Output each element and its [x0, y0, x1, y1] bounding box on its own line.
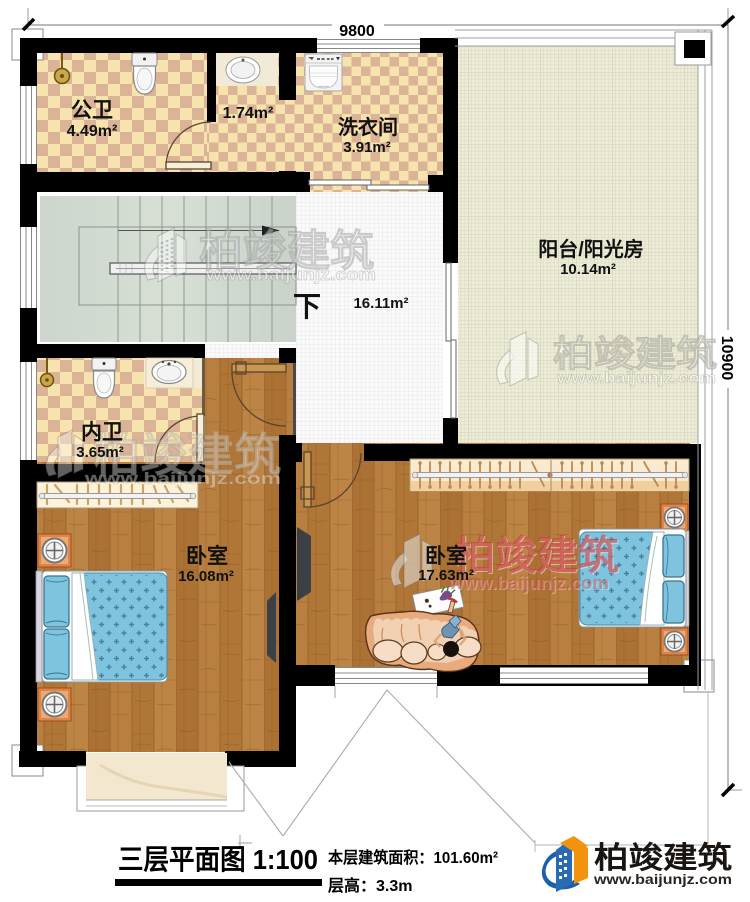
svg-text:阳台/阳光房: 阳台/阳光房 — [538, 237, 644, 261]
svg-text:www.baijunjz.com: www.baijunjz.com — [205, 266, 376, 284]
svg-text:www.baijunjz.com: www.baijunjz.com — [593, 871, 732, 887]
svg-text:www.baijunjz.com: www.baijunjz.com — [556, 370, 716, 387]
svg-text:公卫: 公卫 — [71, 99, 113, 122]
svg-text:层高：3.3m: 层高：3.3m — [328, 876, 412, 895]
svg-text:9800: 9800 — [339, 23, 375, 40]
svg-text:3.65m²: 3.65m² — [76, 444, 124, 461]
svg-text:1.74m²: 1.74m² — [223, 105, 274, 122]
svg-text:洗衣间: 洗衣间 — [338, 115, 398, 139]
svg-text:10900: 10900 — [718, 336, 735, 381]
svg-text:3.91m²: 3.91m² — [343, 139, 391, 156]
svg-text:柏竣建筑: 柏竣建筑 — [553, 333, 717, 374]
svg-text:4.49m²: 4.49m² — [67, 123, 118, 140]
svg-text:10.14m²: 10.14m² — [560, 261, 616, 278]
svg-text:三层平面图 1:100: 三层平面图 1:100 — [118, 844, 318, 875]
svg-text:16.08m²: 16.08m² — [178, 568, 234, 585]
svg-text:卧室: 卧室 — [425, 544, 467, 568]
svg-text:本层建筑面积：101.60m²: 本层建筑面积：101.60m² — [328, 848, 498, 867]
svg-text:柏竣建筑: 柏竣建筑 — [594, 841, 732, 875]
svg-text:16.11m²: 16.11m² — [353, 295, 408, 312]
svg-text:下: 下 — [293, 291, 321, 322]
svg-text:17.63m²: 17.63m² — [418, 567, 474, 584]
svg-text:卧室: 卧室 — [186, 544, 228, 568]
svg-text:www.baijunjz.com: www.baijunjz.com — [84, 469, 281, 488]
svg-text:内卫: 内卫 — [81, 420, 123, 444]
